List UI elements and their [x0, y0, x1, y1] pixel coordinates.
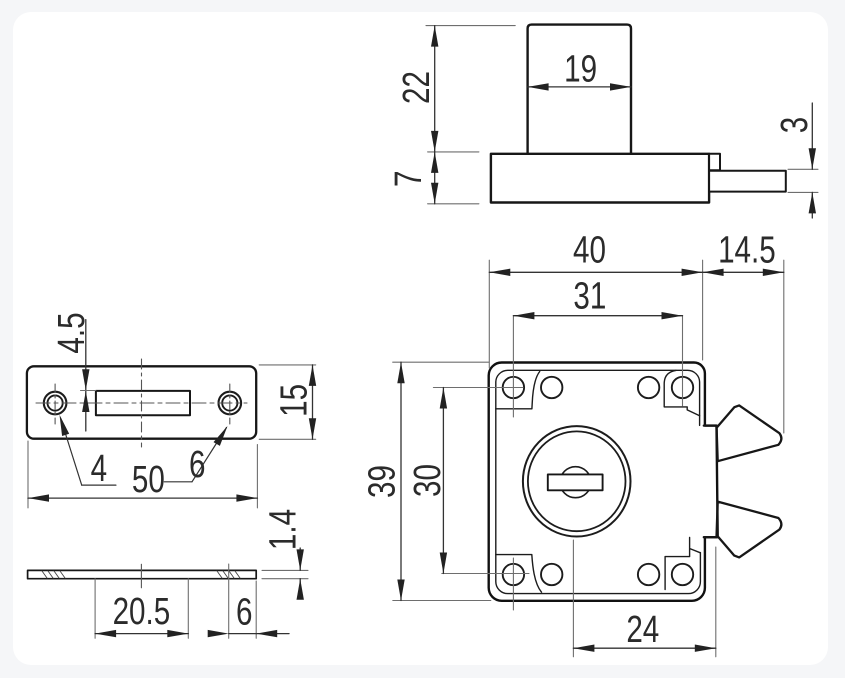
svg-text:3: 3 [774, 117, 816, 133]
svg-text:22: 22 [396, 71, 438, 104]
svg-text:14.5: 14.5 [718, 229, 776, 271]
svg-text:31: 31 [573, 275, 606, 317]
svg-text:50: 50 [132, 458, 165, 500]
svg-text:15: 15 [273, 384, 315, 417]
svg-text:6: 6 [189, 443, 205, 485]
svg-text:7: 7 [388, 171, 430, 187]
svg-text:19: 19 [564, 48, 597, 90]
svg-text:39: 39 [361, 465, 403, 498]
svg-text:24: 24 [626, 608, 659, 650]
svg-text:1.4: 1.4 [262, 509, 304, 550]
svg-text:6: 6 [236, 591, 252, 633]
svg-text:4.5: 4.5 [51, 312, 93, 353]
svg-text:20.5: 20.5 [113, 590, 171, 632]
svg-text:30: 30 [407, 464, 449, 497]
svg-text:4: 4 [91, 448, 107, 490]
svg-text:40: 40 [573, 229, 606, 271]
